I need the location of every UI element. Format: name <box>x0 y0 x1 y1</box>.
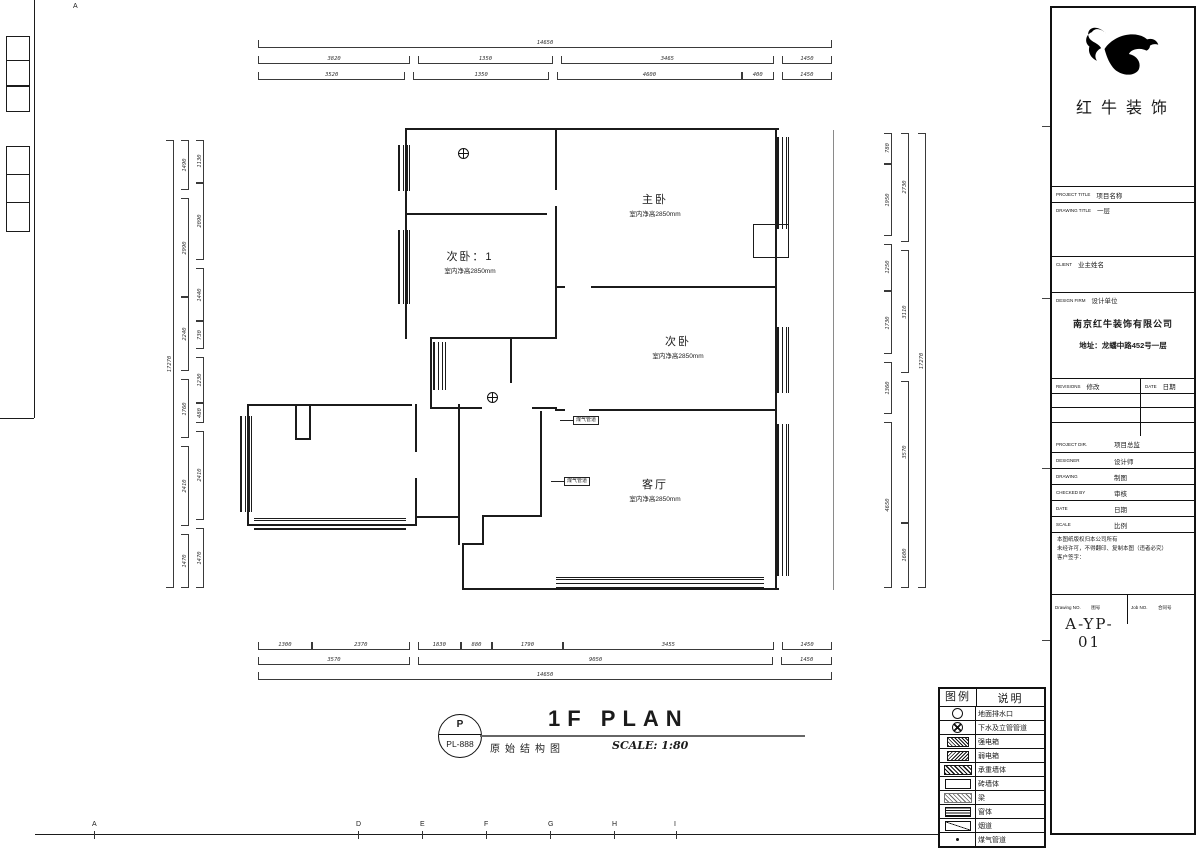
edge-strip-divider <box>6 174 30 175</box>
staff-label-cn: 设计师 <box>1114 456 1134 466</box>
drawing-number-section: Drawing NO. 图号 A-YP-01 Job NO. 合同号 <box>1052 594 1194 624</box>
dim-segment: 2410 <box>181 446 189 526</box>
dim-row-bottom-1: 130023701830880179034551450 <box>258 642 832 650</box>
legend-label: 窗体 <box>976 807 1044 817</box>
room-label-bedroom1: 次卧：1 室内净高2850mm <box>405 248 535 275</box>
legend-header-symbol: 图例 <box>940 689 977 706</box>
firm-address: 地址：龙蟠中路452号一层 <box>1052 340 1194 351</box>
drawing-stamp: P PL-888 <box>438 714 482 758</box>
dim-segment: 4600 <box>557 72 742 80</box>
legend-symbol-icon <box>945 779 971 789</box>
fold-tick <box>1042 126 1050 127</box>
staff-row: PROJECT DIR. 项目总监 <box>1052 436 1194 452</box>
wall-segment <box>462 543 484 545</box>
bull-logo-icon <box>1081 22 1165 81</box>
dim-segment: 1350 <box>418 56 553 64</box>
dim-segment: 1600 <box>901 523 909 588</box>
grid-letter-top: A <box>73 3 78 10</box>
staff-label-en: DESIGNER <box>1056 458 1108 463</box>
window <box>777 137 789 229</box>
dim-row-top-overall: 14650 <box>258 40 832 48</box>
legend-header-desc: 说明 <box>977 690 1044 706</box>
dim-segment: 1760 <box>181 379 189 438</box>
title-block: 红牛装饰 PROJECT TITLE 项目名称 DRAWING TITLE 一层… <box>1050 6 1196 835</box>
legend-table: 图例 说明 地面排水口 下水及立管管道 强电箱 弱电箱 承重墙体 砖墙 <box>938 687 1046 848</box>
legend-symbol-icon <box>944 765 972 775</box>
staff-label-cn: 制图 <box>1114 472 1127 482</box>
leader-line <box>560 420 574 421</box>
sheet-edge-line <box>34 0 35 418</box>
legend-row: 强电箱 <box>940 734 1044 748</box>
stamp-letter: P <box>439 715 481 735</box>
revisions-date-header: DATE 日期 <box>1141 379 1194 393</box>
edge-strip-divider <box>6 60 30 61</box>
staff-label-cn: 项目总监 <box>1114 439 1140 449</box>
staff-label-en: DATE <box>1056 506 1108 511</box>
dim-segment: 3570 <box>258 657 410 665</box>
wall-segment <box>482 515 484 545</box>
dim-col-left-mid: 149029902240176024101470 <box>181 140 189 588</box>
sheet-bottom-line <box>35 834 940 835</box>
fold-tick <box>1042 640 1050 641</box>
duct-outline <box>295 404 297 440</box>
gas-pipe-symbol <box>487 392 498 403</box>
client-value: 业主姓名 <box>1078 259 1104 269</box>
fold-tick <box>1042 298 1050 299</box>
legend-row: 地面排水口 <box>940 706 1044 720</box>
legend-row: 承重墙体 <box>940 762 1044 776</box>
note-line: 本图纸版权归本公司所有 <box>1057 536 1189 545</box>
drawing-name: 原始结构图 <box>490 740 565 755</box>
legend-symbol-icon <box>952 722 963 733</box>
dim-segment: 1470 <box>196 528 204 588</box>
job-no-cn: 合同号 <box>1158 605 1172 610</box>
drawing-number: A-YP-01 <box>1055 615 1124 651</box>
grid-letter: A <box>92 821 97 828</box>
dim-segment: 2240 <box>181 297 189 371</box>
dim-segment: 14650 <box>258 40 832 48</box>
dim-segment: 1450 <box>782 642 832 650</box>
dim-segment: 480 <box>196 403 204 423</box>
duct-outline <box>309 404 311 440</box>
legend-row: 下水及立管管道 <box>940 720 1044 734</box>
legend-symbol-icon <box>944 793 972 803</box>
sheet-edge-tick <box>0 418 34 419</box>
wall-segment <box>247 404 412 406</box>
notes-section: 本图纸版权归本公司所有未经许可，不得翻印、复制本图（违者必究）客户签字： <box>1052 532 1194 594</box>
dim-segment: 3465 <box>561 56 774 64</box>
wall-segment <box>430 337 432 409</box>
revisions-cn: 修改 <box>1087 381 1100 391</box>
note-line: 客户签字： <box>1057 554 1189 563</box>
dim-segment: 1440 <box>196 268 204 321</box>
staff-label-cn: 日期 <box>1114 504 1127 514</box>
dim-segment: 2730 <box>901 133 909 242</box>
client-section: CLIENT 业主姓名 <box>1052 256 1194 292</box>
edge-strip-cell <box>6 146 30 232</box>
dim-segment: 730 <box>196 321 204 349</box>
staff-label-en: SCALE <box>1056 522 1108 527</box>
drawing-title-value: 一层 <box>1097 205 1110 215</box>
legend-row: 窗体 <box>940 804 1044 818</box>
dim-col-left-inner: 113020901440730123048024101470 <box>196 140 204 588</box>
edge-strip-cell <box>6 36 30 86</box>
dim-segment: 1950 <box>884 164 892 236</box>
company-name: 红牛装饰 <box>1052 94 1194 118</box>
room-name: 次卧：1 <box>405 248 535 264</box>
wall-segment <box>540 411 542 517</box>
legend-row: 烟道 <box>940 818 1044 832</box>
legend-header: 图例 说明 <box>940 689 1044 706</box>
dim-segment: 1250 <box>884 244 892 291</box>
duct-outline <box>295 438 311 440</box>
wall-segment <box>430 337 557 339</box>
gas-pipe-symbol <box>458 148 469 159</box>
staff-label-cn: 比例 <box>1114 520 1127 530</box>
firm-value: 设计单位 <box>1092 295 1118 305</box>
wall-segment <box>430 407 482 409</box>
dim-segment: 3570 <box>901 381 909 523</box>
staff-row: DESIGNER 设计师 <box>1052 452 1194 468</box>
legend-row: 弱电箱 <box>940 748 1044 762</box>
notes-list: 本图纸版权归本公司所有未经许可，不得翻印、复制本图（违者必究）客户签字： <box>1057 536 1189 563</box>
dim-col-right-overall: 17270 <box>918 133 926 588</box>
legend-row: 梁 <box>940 790 1044 804</box>
dim-segment: 1130 <box>196 140 204 183</box>
revisions-header: REVISIONS 修改 <box>1052 379 1148 393</box>
logo-section: 红牛装饰 <box>1052 8 1194 186</box>
job-number-cell: Job NO. 合同号 <box>1128 595 1194 624</box>
legend-label: 梁 <box>976 793 1044 803</box>
plan-title: 1F PLAN <box>548 706 689 732</box>
room-name: 主卧 <box>590 191 720 207</box>
dim-segment: 1350 <box>413 72 549 80</box>
wall-segment <box>555 206 557 339</box>
revisions-line <box>1052 393 1194 394</box>
dim-segment: 4650 <box>884 422 892 588</box>
staff-row: DRAWING 制图 <box>1052 468 1194 484</box>
room-height: 室内净高2850mm <box>613 350 743 360</box>
dim-segment: 1230 <box>196 357 204 403</box>
legend-label: 烟道 <box>976 821 1044 831</box>
window <box>240 416 252 512</box>
stamp-number: PL-888 <box>439 735 481 754</box>
wall-segment <box>555 409 565 411</box>
grid-letter: D <box>356 821 361 828</box>
firm-label: DESIGN FIRM <box>1056 298 1086 303</box>
fold-tick <box>1042 468 1050 469</box>
revisions-line <box>1052 422 1194 423</box>
drawing-title-section: DRAWING TITLE 一层 <box>1052 202 1194 256</box>
dim-segment: 2990 <box>181 198 189 297</box>
project-title-value: 项目名称 <box>1096 190 1122 200</box>
grid-letter: H <box>612 821 617 828</box>
revisions-line <box>1052 407 1194 408</box>
room-height: 室内净高2850mm <box>590 493 720 503</box>
wall-segment <box>555 128 557 190</box>
legend-rows: 地面排水口 下水及立管管道 强电箱 弱电箱 承重墙体 砖墙体 梁 <box>940 706 1044 846</box>
wall-segment <box>555 286 565 288</box>
room-label-living: 客厅 室内净高2850mm <box>590 476 720 503</box>
staff-label-en: DRAWING <box>1056 474 1108 479</box>
scale-text: SCALE: 1:80 <box>612 739 688 752</box>
wall-segment <box>415 404 417 452</box>
staff-row: DATE 日期 <box>1052 500 1194 516</box>
wall-segment <box>458 516 460 545</box>
wall-segment <box>589 409 777 411</box>
legend-row: 煤气管道 <box>940 832 1044 846</box>
leader-line <box>551 481 565 482</box>
wall-segment <box>532 407 557 409</box>
dim-segment: 1450 <box>782 56 832 64</box>
dim-row-bottom-overall: 14650 <box>258 672 832 680</box>
edge-strip-divider <box>6 202 30 203</box>
dim-segment: 2090 <box>196 183 204 260</box>
room-name: 次卧 <box>613 333 743 349</box>
window <box>777 327 789 393</box>
dim-segment: 3520 <box>258 72 405 80</box>
drawing-sheet: A ADEFGHI 主卧 室内净高285 <box>0 0 1200 840</box>
dim-segment: 9050 <box>418 657 773 665</box>
grid-letter: F <box>484 821 488 828</box>
drawing-title-label: DRAWING TITLE <box>1056 208 1091 213</box>
date-label: DATE <box>1145 384 1157 389</box>
room-name: 客厅 <box>590 476 720 492</box>
legend-label: 砖墙体 <box>976 779 1044 789</box>
firm-name: 南京红牛装饰有限公司 <box>1052 317 1194 330</box>
wall-segment <box>415 516 460 518</box>
dim-segment: 14650 <box>258 672 832 680</box>
dim-segment: 1450 <box>782 72 832 80</box>
closet-outline <box>753 224 789 258</box>
dim-segment: 1730 <box>884 291 892 355</box>
dim-segment: 17270 <box>918 133 926 588</box>
window <box>433 342 446 390</box>
wall-segment <box>462 543 464 590</box>
legend-label: 下水及立管管道 <box>976 723 1044 733</box>
grid-letter: I <box>674 821 676 828</box>
pipe-annotation: 煤气管道 <box>564 477 590 486</box>
room-height: 室内净高2850mm <box>405 265 535 275</box>
title-underline <box>480 735 805 737</box>
wall-segment <box>405 128 779 130</box>
edge-strip-cell <box>6 86 30 112</box>
wall-segment <box>591 286 777 288</box>
client-label: CLIENT <box>1056 262 1072 267</box>
legend-label: 承重墙体 <box>976 765 1044 775</box>
wall-segment <box>482 515 542 517</box>
project-title-row: PROJECT TITLE 项目名称 <box>1052 186 1194 202</box>
dim-segment: 3820 <box>258 56 410 64</box>
drawing-number-cell: Drawing NO. 图号 A-YP-01 <box>1052 595 1128 624</box>
date-cn: 日期 <box>1163 381 1176 391</box>
dim-segment: 2410 <box>196 431 204 520</box>
extension-line <box>833 130 834 590</box>
window <box>556 577 764 589</box>
dim-segment: 1470 <box>181 534 189 588</box>
dim-segment: 1360 <box>884 362 892 413</box>
dim-row-bottom-2: 357090501450 <box>258 657 832 665</box>
drawing-no-label: Drawing NO. <box>1055 605 1081 610</box>
legend-label: 地面排水口 <box>976 709 1044 719</box>
drawing-no-cn: 图号 <box>1091 605 1100 610</box>
dim-row-top-2: 3820135034651450 <box>258 56 832 64</box>
note-line: 未经许可，不得翻印、复制本图（违者必究） <box>1057 545 1189 554</box>
revisions-label: REVISIONS <box>1056 384 1081 389</box>
room-label-bedroom2: 次卧 室内净高2850mm <box>613 333 743 360</box>
legend-symbol-icon <box>945 807 971 817</box>
legend-symbol-icon <box>945 821 971 831</box>
dim-segment: 1450 <box>781 657 832 665</box>
dim-segment: 780 <box>884 133 892 164</box>
revisions-table: REVISIONS 修改 DATE 日期 <box>1052 378 1194 436</box>
legend-row: 砖墙体 <box>940 776 1044 790</box>
wall-segment <box>405 213 547 215</box>
window <box>398 145 410 191</box>
grid-letter: G <box>548 821 553 828</box>
grid-letter: E <box>420 821 425 828</box>
staff-row: CHECKED BY 审核 <box>1052 484 1194 500</box>
legend-label: 弱电箱 <box>976 751 1044 761</box>
dim-row-top-3: 3520135046004001450 <box>258 72 832 80</box>
window <box>254 518 406 530</box>
wall-segment <box>510 337 512 383</box>
room-height: 室内净高2850mm <box>590 208 720 218</box>
staff-label-cn: 审核 <box>1114 488 1127 498</box>
job-no-label: Job NO. <box>1131 605 1148 610</box>
dim-segment: 3110 <box>901 250 909 374</box>
dim-segment: 1490 <box>181 140 189 190</box>
dim-segment: 3455 <box>563 642 774 650</box>
wall-segment <box>458 404 460 518</box>
dim-col-right-inner: 78019501250173013604650 <box>884 133 892 588</box>
legend-symbol-icon <box>952 708 963 719</box>
wall-segment <box>462 588 542 590</box>
dim-segment: 2370 <box>312 642 410 650</box>
legend-symbol-icon <box>947 751 969 761</box>
legend-label: 强电箱 <box>976 737 1044 747</box>
legend-symbol-icon <box>947 737 969 747</box>
staff-rows: PROJECT DIR. 项目总监 DESIGNER 设计师 DRAWING 制… <box>1052 436 1194 532</box>
dim-col-left-overall: 17270 <box>166 140 174 588</box>
staff-label-en: CHECKED BY <box>1056 490 1108 495</box>
project-title-label: PROJECT TITLE <box>1056 192 1090 197</box>
design-firm-section: DESIGN FIRM 设计单位 南京红牛装饰有限公司 地址：龙蟠中路452号一… <box>1052 292 1194 378</box>
staff-row: SCALE 比例 <box>1052 516 1194 532</box>
pipe-annotation: 煤气管道 <box>573 416 599 425</box>
room-label-master: 主卧 室内净高2850mm <box>590 191 720 218</box>
wall-segment <box>415 478 417 526</box>
staff-label-en: PROJECT DIR. <box>1056 442 1108 447</box>
dim-col-right-mid: 2730311035701600 <box>901 133 909 588</box>
dim-segment: 17270 <box>166 140 174 588</box>
window <box>777 424 789 576</box>
